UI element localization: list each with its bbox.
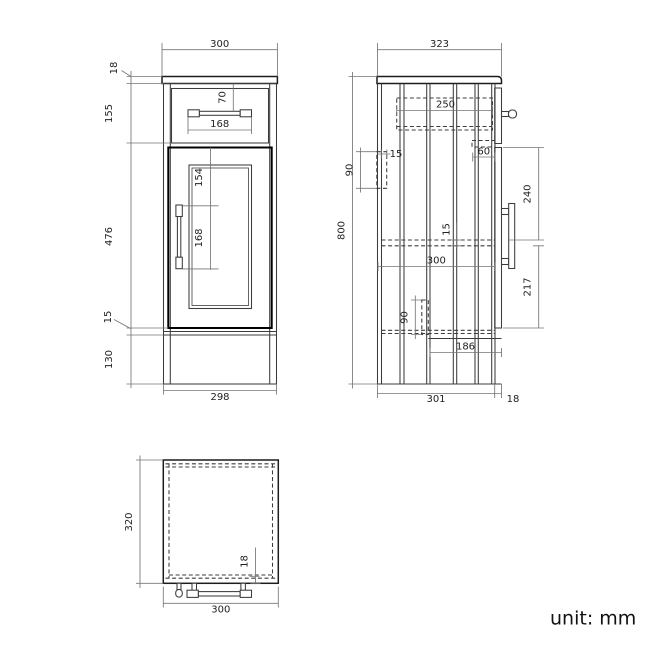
side-leg-dashed (422, 300, 429, 335)
dim-side-top-depth: 323 (378, 39, 502, 77)
dim-front-door-handle: 154 168 (183, 148, 219, 270)
top-view: 320 18 300 (124, 456, 278, 616)
dim-side-bracket-thickness-label: 15 (390, 149, 403, 160)
dim-top-depth: 320 (124, 456, 163, 589)
dim-side-handle-top-label: 240 (523, 184, 534, 203)
front-view: 300 18 155 476 15 130 70 168 154 168 (103, 39, 277, 403)
dim-side-leg: 90 186 (400, 296, 502, 358)
dim-side-bracket-height-label: 90 (345, 164, 356, 177)
dim-top-door-thickness-label: 18 (240, 555, 251, 568)
top-drawer-handle (187, 583, 252, 597)
dim-side-height: 800 (337, 72, 378, 389)
dim-front-gap-label: 15 (103, 311, 114, 324)
dim-front-drawer-handle-width-label: 168 (210, 119, 229, 130)
dim-front-plinth-label: 130 (104, 350, 115, 369)
dim-front-bottom-width-label: 298 (210, 392, 229, 403)
technical-drawing-page: 300 18 155 476 15 130 70 168 154 168 (0, 0, 650, 650)
front-door-handle (176, 205, 182, 269)
top-door-knob (176, 583, 183, 597)
dim-side-shelf-thickness-label: 15 (442, 223, 453, 236)
dim-front-left-chain: 18 155 476 15 130 (103, 62, 170, 388)
dim-top-door-thickness: 18 (240, 548, 261, 584)
dim-side-handle-bottom-label: 217 (523, 277, 534, 296)
side-bottom-panel-dashed (382, 330, 495, 333)
side-worktop (377, 77, 502, 84)
side-shelf-dashed (382, 240, 495, 246)
dim-front-door-handle-offset-label: 154 (194, 168, 205, 187)
dim-side-bracket: 90 15 (345, 148, 403, 193)
unit-note: unit: mm (550, 608, 636, 630)
dim-front-drawer-height-label: 155 (104, 104, 115, 123)
dim-top-width-label: 300 (211, 605, 230, 616)
dim-front-top-width: 300 (162, 39, 277, 77)
dim-side-bottom: 301 18 (378, 384, 520, 405)
front-door (168, 148, 271, 329)
front-worktop (162, 77, 277, 84)
dim-side-door-thickness-label: 18 (507, 394, 520, 405)
dim-front-top-width-label: 300 (210, 39, 229, 50)
dim-side-leg-offset-label: 186 (456, 342, 475, 353)
dim-top-depth-label: 320 (124, 512, 135, 531)
top-worktop-outline (163, 460, 278, 583)
dim-front-door-handle-length-label: 168 (194, 228, 205, 247)
top-carcass-dashed (166, 464, 277, 578)
dim-side-height-label: 800 (337, 221, 348, 240)
dim-side-drawer-depth-label: 250 (436, 100, 455, 111)
cabinet-dimension-drawing: 300 18 155 476 15 130 70 168 154 168 (0, 0, 650, 650)
side-door (495, 148, 502, 329)
dim-front-drawer-handle-offset-label: 70 (218, 91, 229, 104)
dim-side-shelf-depth-label: 300 (427, 256, 446, 267)
dim-side-leg-height-label: 90 (400, 311, 411, 324)
dim-side-runner-label: 60 (477, 147, 490, 158)
side-drawer-knob (502, 110, 517, 118)
dim-side-body-depth-label: 301 (426, 394, 445, 405)
side-door-handle (502, 204, 515, 269)
dim-side-shelf: 15 300 (378, 223, 495, 271)
dim-front-worktop-label: 18 (109, 62, 120, 75)
dim-side-top-depth-label: 323 (430, 39, 449, 50)
dim-front-bottom-width: 298 (164, 384, 277, 403)
dim-front-drawer-handle-offset: 70 (218, 84, 234, 112)
front-drawer-handle (188, 110, 252, 117)
dim-front-door-height-label: 476 (104, 227, 115, 246)
dim-front-drawer-handle-width: 168 (188, 117, 252, 134)
side-drawer-front (495, 88, 502, 144)
side-view: 323 800 250 90 15 60 15 300 (337, 39, 545, 405)
